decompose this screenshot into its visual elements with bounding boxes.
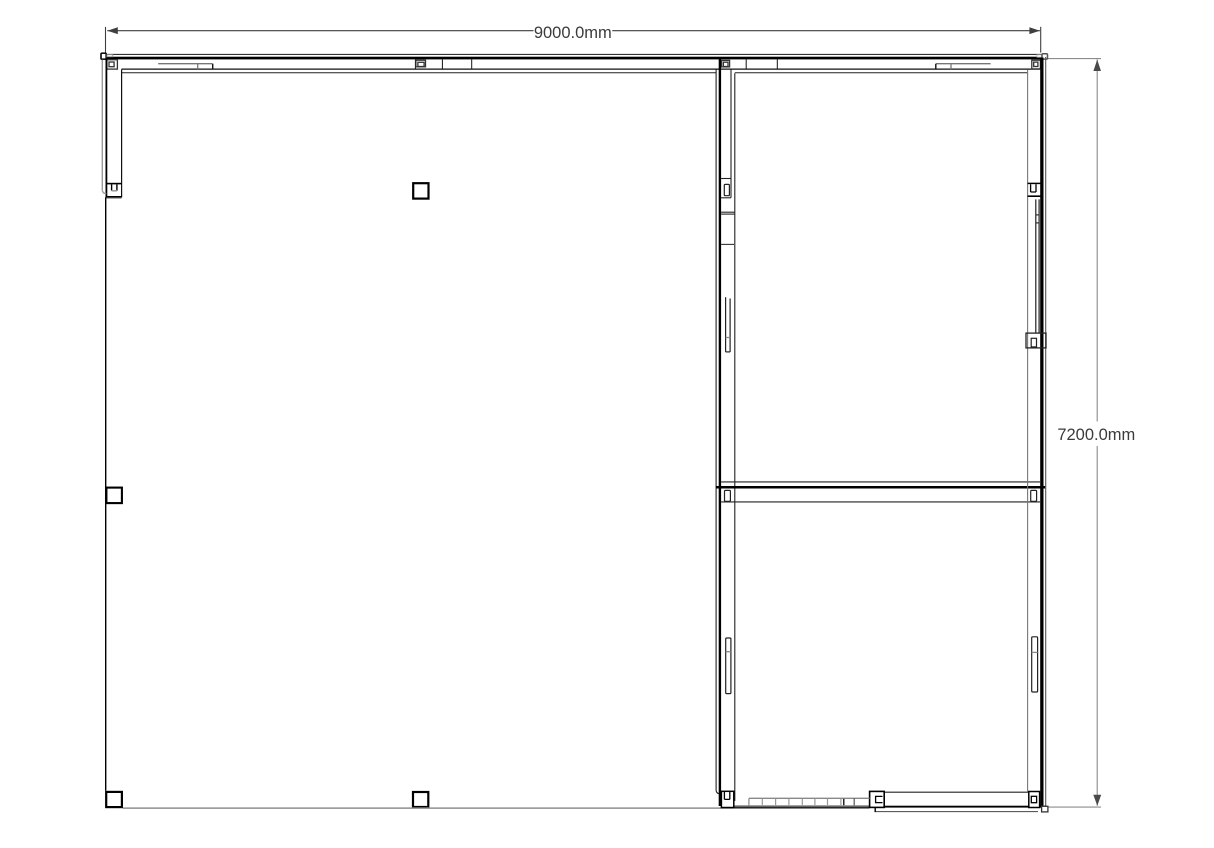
svg-text:7200.0mm: 7200.0mm bbox=[1057, 426, 1135, 444]
svg-text:9000.0mm: 9000.0mm bbox=[534, 24, 612, 42]
